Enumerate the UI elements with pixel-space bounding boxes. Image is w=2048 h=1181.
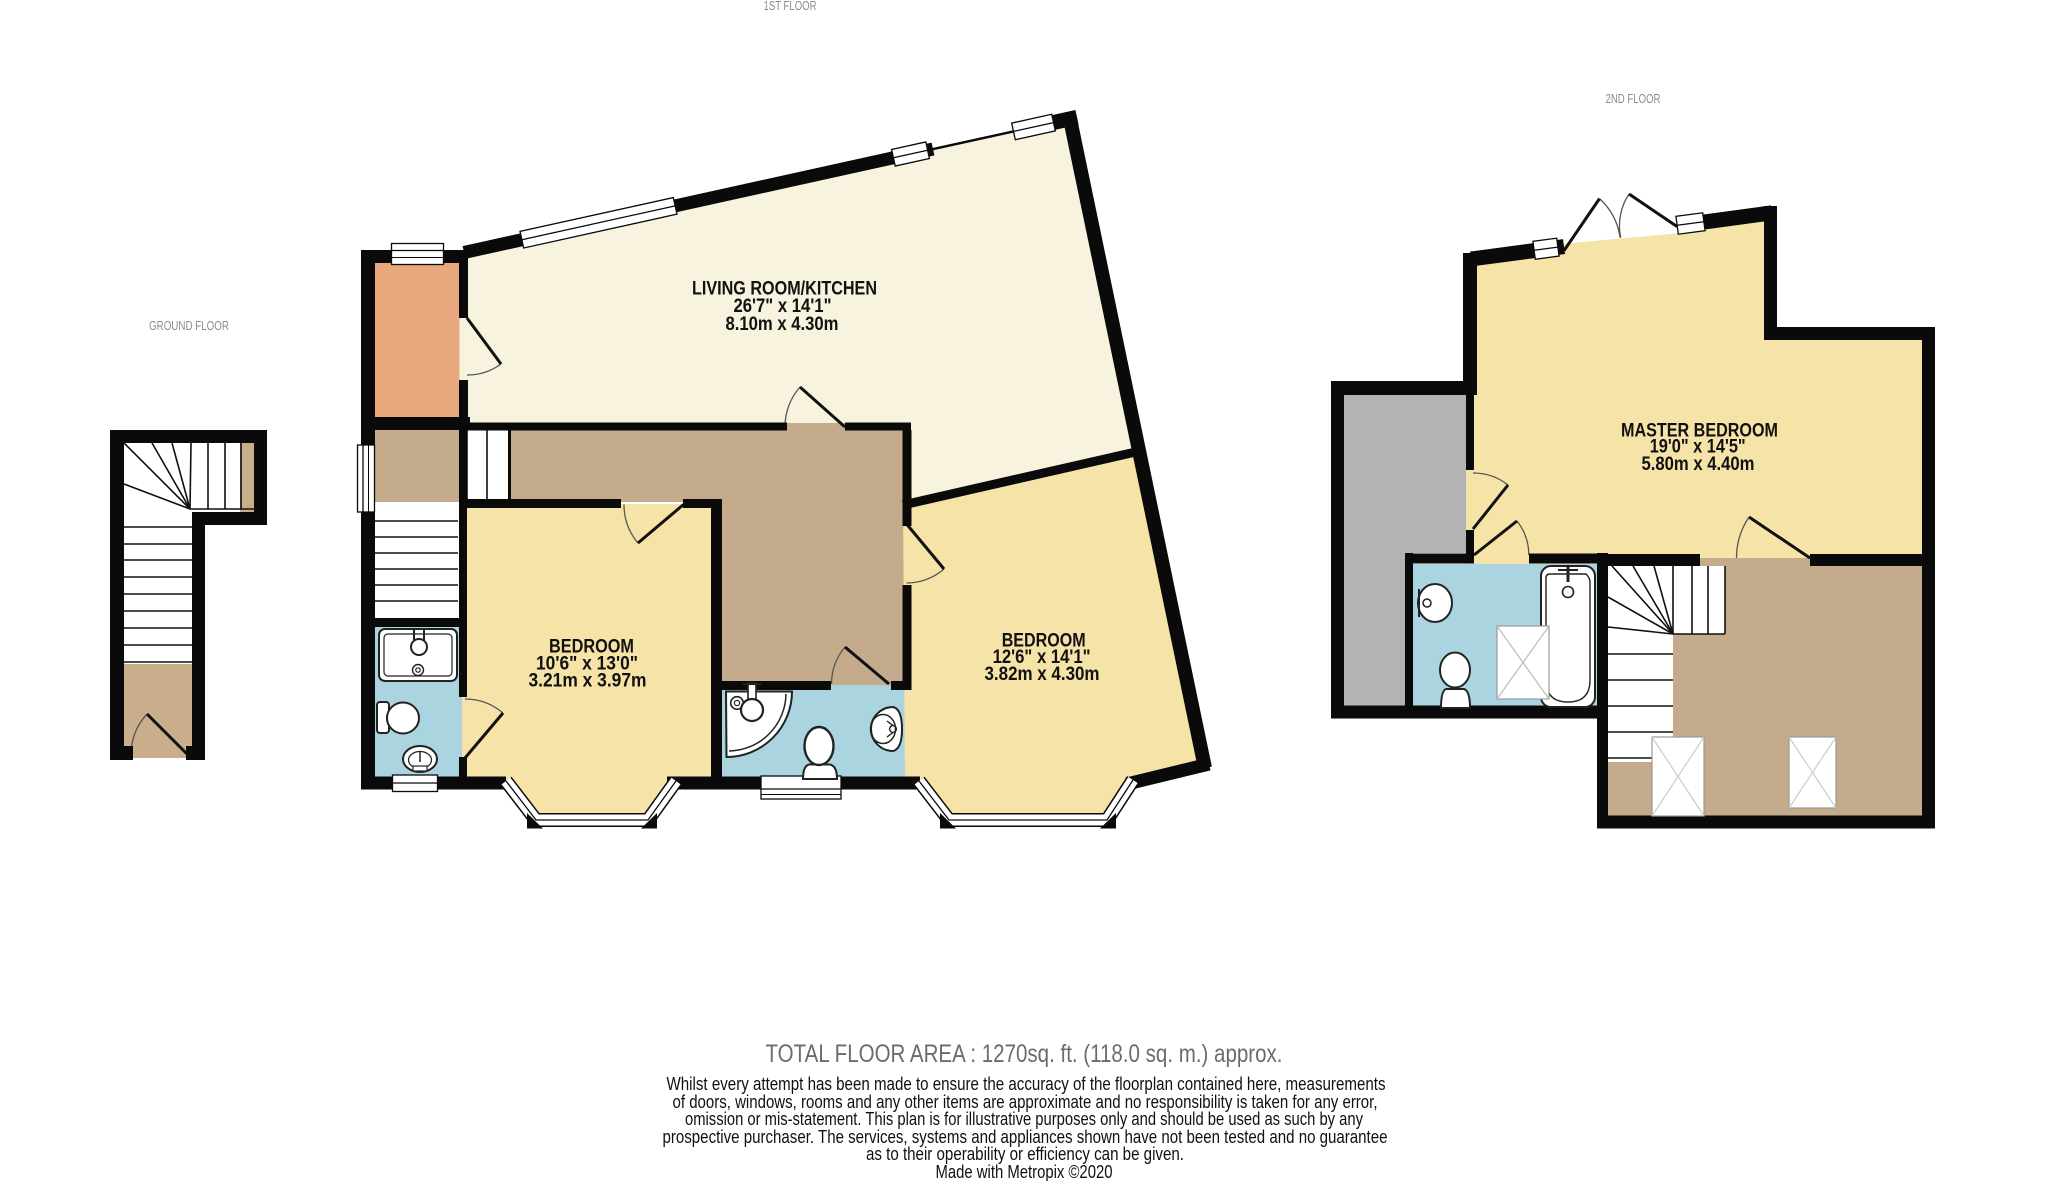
svg-text:omission or mis-statement. Thi: omission or mis-statement. This plan is … <box>685 1109 1363 1129</box>
svg-text:GROUND FLOOR: GROUND FLOOR <box>149 318 229 333</box>
svg-text:3.21m x 3.97m: 3.21m x 3.97m <box>529 670 647 691</box>
svg-text:TOTAL FLOOR AREA : 1270sq. ft.: TOTAL FLOOR AREA : 1270sq. ft. (118.0 sq… <box>766 1040 1283 1068</box>
svg-text:8.10m x 4.30m: 8.10m x 4.30m <box>726 314 839 335</box>
svg-text:5.80m x 4.40m: 5.80m x 4.40m <box>1642 454 1755 475</box>
svg-text:Made with Metropix ©2020: Made with Metropix ©2020 <box>936 1162 1113 1181</box>
svg-text:as to their operability or eff: as to their operability or efficiency ca… <box>866 1144 1184 1164</box>
svg-text:3.82m x 4.30m: 3.82m x 4.30m <box>985 664 1100 685</box>
svg-text:Whilst every attempt has been: Whilst every attempt has been made to en… <box>667 1074 1386 1094</box>
svg-text:1ST FLOOR: 1ST FLOOR <box>764 0 817 13</box>
svg-text:2ND FLOOR: 2ND FLOOR <box>1606 91 1661 106</box>
